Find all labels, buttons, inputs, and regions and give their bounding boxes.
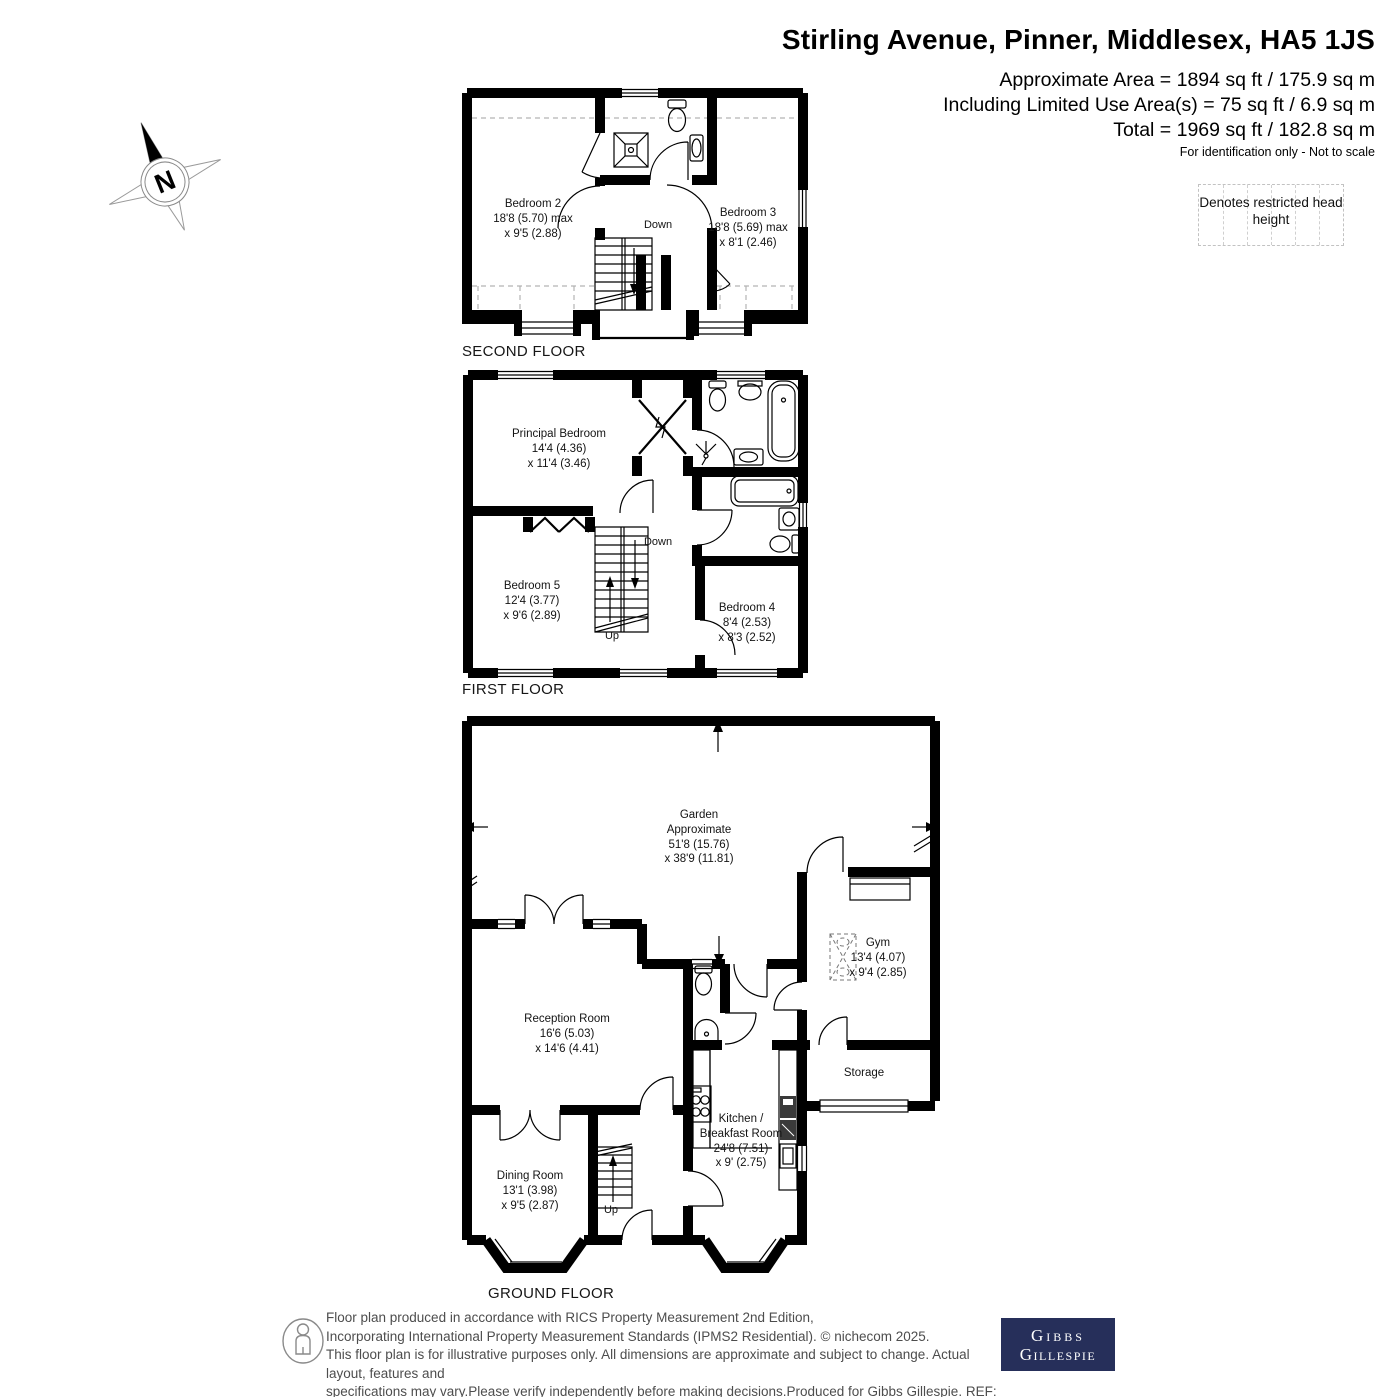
room-label-storage: Storage	[844, 1066, 884, 1081]
staircase-icon	[595, 1144, 632, 1208]
room-label-gym: Gym 13'4 (4.07) x 9'4 (2.85)	[849, 936, 906, 980]
area-summary: Approximate Area = 1894 sq ft / 175.9 sq…	[943, 68, 1375, 143]
approximate-area: Approximate Area = 1894 sq ft / 175.9 sq…	[943, 68, 1375, 93]
footer-disclaimer: Floor plan produced in accordance with R…	[326, 1309, 1006, 1397]
room-label-bedroom4: Bedroom 4 8'4 (2.53) x 8'3 (2.52)	[718, 601, 775, 645]
shower-icon	[614, 133, 648, 167]
restricted-head-height-legend: Denotes restricted head height	[1198, 184, 1344, 246]
legend-text: Denotes restricted head height	[1199, 194, 1343, 228]
room-label-dining: Dining Room 13'1 (3.98) x 9'5 (2.87)	[497, 1169, 563, 1213]
gibbs-gillespie-logo: Gibbs Gillespie	[1001, 1318, 1115, 1371]
floorplan-page: Stirling Avenue, Pinner, Middlesex, HA5 …	[0, 0, 1397, 1397]
room-label-bedroom5: Bedroom 5 12'4 (3.77) x 9'6 (2.89)	[503, 579, 560, 623]
room-label-bedroom2: Bedroom 2 18'8 (5.70) max x 9'5 (2.88)	[493, 197, 573, 241]
stairs-down-label: Down	[644, 536, 672, 548]
toilet-icon	[668, 100, 686, 132]
sink-icon	[734, 449, 763, 465]
shower-head-icon	[696, 441, 716, 465]
sink-icon	[738, 381, 762, 400]
compass-icon: N	[85, 96, 245, 260]
toilet-icon	[770, 535, 799, 553]
sink-icon	[690, 135, 703, 161]
scale-disclaimer: For identification only - Not to scale	[1180, 145, 1375, 159]
second-floor-caption: SECOND FLOOR	[462, 343, 586, 360]
sink-icon	[780, 1144, 796, 1168]
room-label-bedroom3: Bedroom 3 18'8 (5.69) max x 8'1 (2.46)	[708, 206, 788, 250]
sink-icon	[779, 508, 799, 530]
total-area: Total = 1969 sq ft / 182.8 sq m	[943, 118, 1375, 143]
ensuite-fixtures	[731, 476, 799, 553]
stairs-down-label: Down	[644, 219, 672, 231]
stairs-up-label: Up	[605, 630, 619, 642]
fridge-icon	[780, 1096, 796, 1140]
room-label-principal-bedroom: Principal Bedroom 14'4 (4.36) x 11'4 (3.…	[512, 427, 606, 471]
room-label-reception: Reception Room 16'6 (5.03) x 14'6 (4.41)	[524, 1012, 610, 1056]
stairs-up-label: Up	[604, 1204, 618, 1216]
bathroom-fixtures	[696, 381, 799, 465]
sink-icon	[695, 1020, 718, 1044]
ground-floor-caption: GROUND FLOOR	[488, 1285, 614, 1302]
first-floor-caption: FIRST FLOOR	[462, 681, 564, 698]
bathtub-icon	[768, 381, 799, 461]
room-label-garden: Garden Approximate 51'8 (15.76) x 38'9 (…	[664, 808, 733, 867]
toilet-icon	[695, 966, 712, 995]
wc-fixtures	[695, 966, 718, 1043]
bathtub-icon	[731, 476, 798, 506]
toilet-icon	[709, 381, 726, 411]
page-title: Stirling Avenue, Pinner, Middlesex, HA5 …	[782, 24, 1375, 56]
person-icon	[281, 1317, 325, 1365]
staircase-icon	[595, 527, 648, 632]
limited-use-area: Including Limited Use Area(s) = 75 sq ft…	[943, 93, 1375, 118]
room-label-kitchen: Kitchen / Breakfast Room 24'8 (7.51) x 9…	[700, 1112, 782, 1171]
